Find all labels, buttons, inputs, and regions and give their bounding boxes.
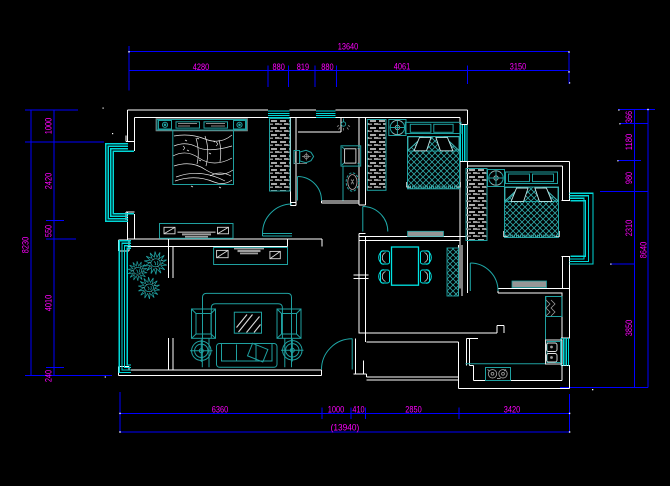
svg-text:8230: 8230 bbox=[21, 237, 31, 253]
svg-text:13640: 13640 bbox=[338, 42, 359, 52]
svg-text:3150: 3150 bbox=[510, 61, 526, 71]
svg-text:3420: 3420 bbox=[504, 405, 520, 415]
svg-text:6360: 6360 bbox=[212, 405, 228, 415]
svg-text:8640: 8640 bbox=[639, 242, 649, 258]
svg-text:2850: 2850 bbox=[405, 405, 421, 415]
svg-text:2310: 2310 bbox=[624, 220, 634, 236]
svg-text:2420: 2420 bbox=[44, 173, 54, 189]
svg-text:1000: 1000 bbox=[328, 405, 344, 415]
svg-text:550: 550 bbox=[44, 225, 54, 237]
svg-text:366: 366 bbox=[624, 111, 634, 123]
svg-text:1000: 1000 bbox=[44, 118, 54, 134]
svg-text:3850: 3850 bbox=[624, 320, 634, 336]
svg-text:880: 880 bbox=[321, 62, 333, 72]
svg-text:4280: 4280 bbox=[193, 62, 209, 72]
svg-text:819: 819 bbox=[297, 62, 309, 72]
svg-text:880: 880 bbox=[273, 62, 285, 72]
svg-text:980: 980 bbox=[624, 172, 634, 184]
svg-text:(13940): (13940) bbox=[331, 422, 360, 432]
svg-text:4010: 4010 bbox=[44, 295, 54, 311]
svg-text:240: 240 bbox=[44, 370, 54, 382]
svg-text:1180: 1180 bbox=[624, 134, 634, 150]
svg-text:4061: 4061 bbox=[394, 61, 410, 71]
svg-text:410: 410 bbox=[352, 405, 364, 415]
